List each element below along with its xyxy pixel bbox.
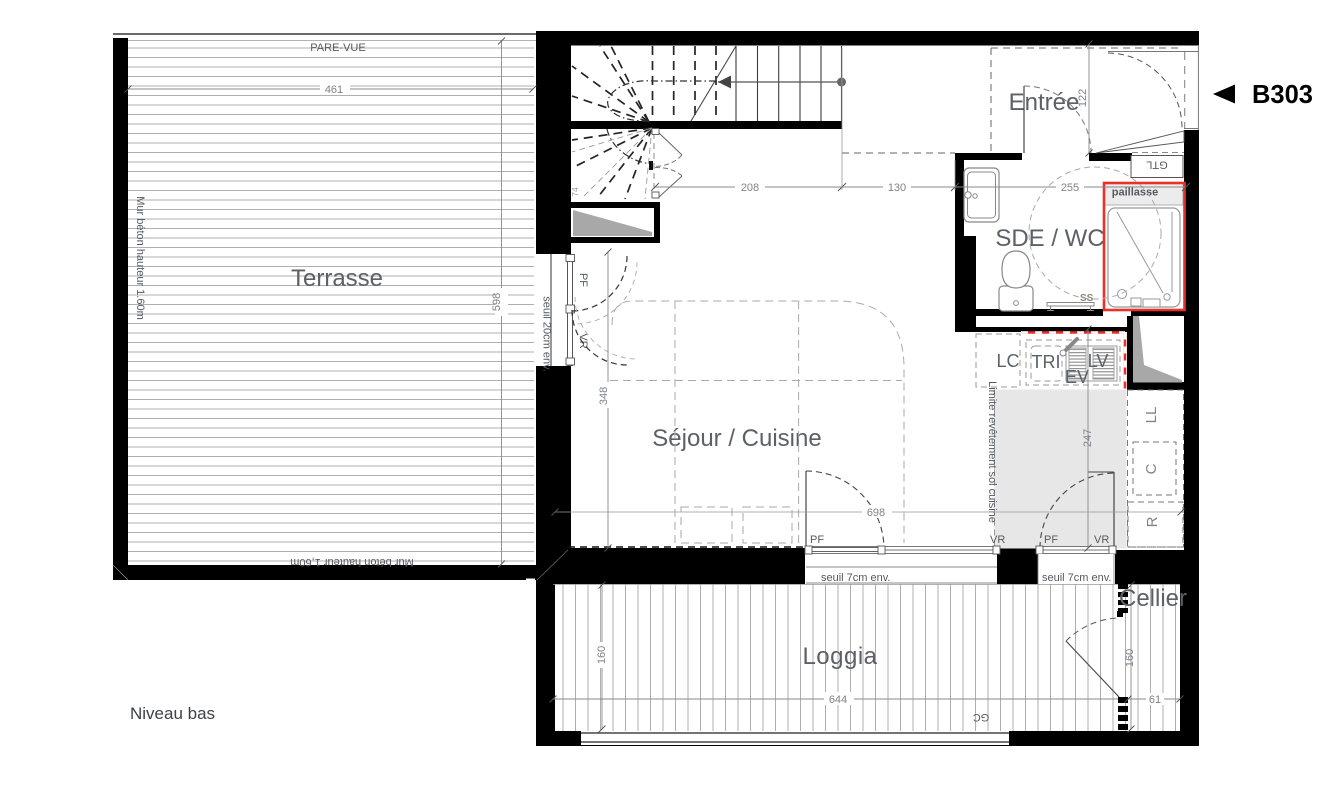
svg-text:seuil 20cm env.: seuil 20cm env.: [541, 296, 553, 372]
svg-text:348: 348: [598, 387, 610, 405]
svg-text:TRI: TRI: [1032, 352, 1061, 372]
svg-text:seuil 7cm env.: seuil 7cm env.: [821, 572, 891, 584]
svg-text:Niveau bas: Niveau bas: [130, 704, 215, 723]
svg-text:R: R: [1144, 516, 1161, 527]
svg-text:PARE-VUE: PARE-VUE: [310, 42, 365, 54]
svg-text:Mur béton hauteur 1.60m: Mur béton hauteur 1.60m: [134, 196, 146, 320]
svg-text:Entrée: Entrée: [1009, 89, 1080, 116]
svg-text:255: 255: [1061, 182, 1079, 194]
svg-text:LV: LV: [1088, 351, 1109, 371]
svg-text:698: 698: [867, 507, 885, 519]
svg-text:208: 208: [741, 182, 759, 194]
svg-text:61: 61: [1149, 694, 1161, 706]
svg-text:122: 122: [1077, 89, 1089, 107]
svg-text:C: C: [1143, 463, 1160, 474]
svg-text:SDE / WC: SDE / WC: [995, 225, 1104, 252]
svg-text:VR: VR: [577, 333, 589, 348]
svg-text:PF: PF: [1044, 534, 1058, 546]
svg-text:paillasse: paillasse: [1112, 187, 1158, 199]
svg-text:LC: LC: [996, 351, 1019, 371]
svg-text:Loggia: Loggia: [802, 643, 877, 670]
svg-text:461: 461: [325, 84, 343, 96]
svg-text:seuil 7cm env.: seuil 7cm env.: [1042, 572, 1112, 584]
svg-text:PF: PF: [577, 273, 589, 287]
svg-text:130: 130: [888, 182, 906, 194]
svg-text:Mur béton hauteur 1,60m: Mur béton hauteur 1,60m: [290, 556, 414, 568]
svg-text:644: 644: [829, 694, 847, 706]
svg-text:PF: PF: [810, 534, 824, 546]
svg-text:Terrasse: Terrasse: [291, 265, 383, 292]
svg-text:VR: VR: [1094, 534, 1109, 546]
svg-text:GC: GC: [973, 711, 990, 723]
svg-text:GTL: GTL: [1146, 159, 1167, 171]
svg-text:LL: LL: [1143, 407, 1160, 424]
svg-text:160: 160: [596, 646, 608, 664]
svg-text:160: 160: [1124, 649, 1136, 667]
svg-text:74: 74: [570, 187, 580, 197]
svg-text:598: 598: [491, 293, 503, 311]
svg-text:EV: EV: [1065, 367, 1089, 387]
svg-text:Séjour / Cuisine: Séjour / Cuisine: [652, 425, 821, 452]
svg-text:VR: VR: [990, 534, 1005, 546]
svg-text:247: 247: [1082, 429, 1094, 447]
svg-text:B303: B303: [1252, 81, 1313, 109]
svg-text:Limite revêtement sol cuisine: Limite revêtement sol cuisine: [986, 381, 998, 523]
svg-text:Cellier: Cellier: [1119, 585, 1187, 612]
